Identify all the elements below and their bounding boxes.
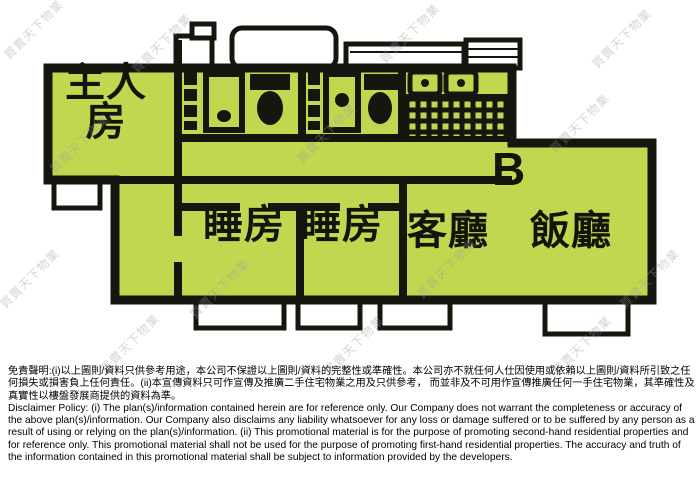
master-bedroom-label: 主人房: [54, 64, 158, 142]
bedroom-2-label: 睡房: [301, 206, 383, 245]
toilet-cistern-icon: [250, 74, 290, 90]
kitchen-floor-tiles: [404, 96, 506, 138]
page: 主人房 睡房 睡房 客廳 飯廳 B 買賣天下物業 買賣天下物業 買賣天下物業 買…: [0, 0, 699, 494]
balcony-step-small: [192, 24, 214, 38]
toilet-bowl-icon-2: [368, 92, 392, 124]
bay-window: [232, 28, 336, 68]
toilet-cistern-icon-2: [364, 74, 398, 90]
toilet-bowl-icon: [257, 91, 283, 125]
disclaimer-block: 免責聲明:(i)以上圖則/資料只供參考用途，本公司不保證以上圖則/資料的完整性或…: [8, 366, 696, 464]
bedroom-1-label: 睡房: [203, 206, 285, 245]
disclaimer-chinese: 免責聲明:(i)以上圖則/資料只供參考用途，本公司不保證以上圖則/資料的完整性或…: [8, 366, 696, 403]
dining-room-label: 飯廳: [530, 212, 612, 251]
bathtub-drain-icon: [217, 110, 231, 122]
disclaimer-english: Disclaimer Policy: (i) The plan(s)/infor…: [8, 403, 696, 464]
unit-b-label: B: [492, 146, 525, 192]
